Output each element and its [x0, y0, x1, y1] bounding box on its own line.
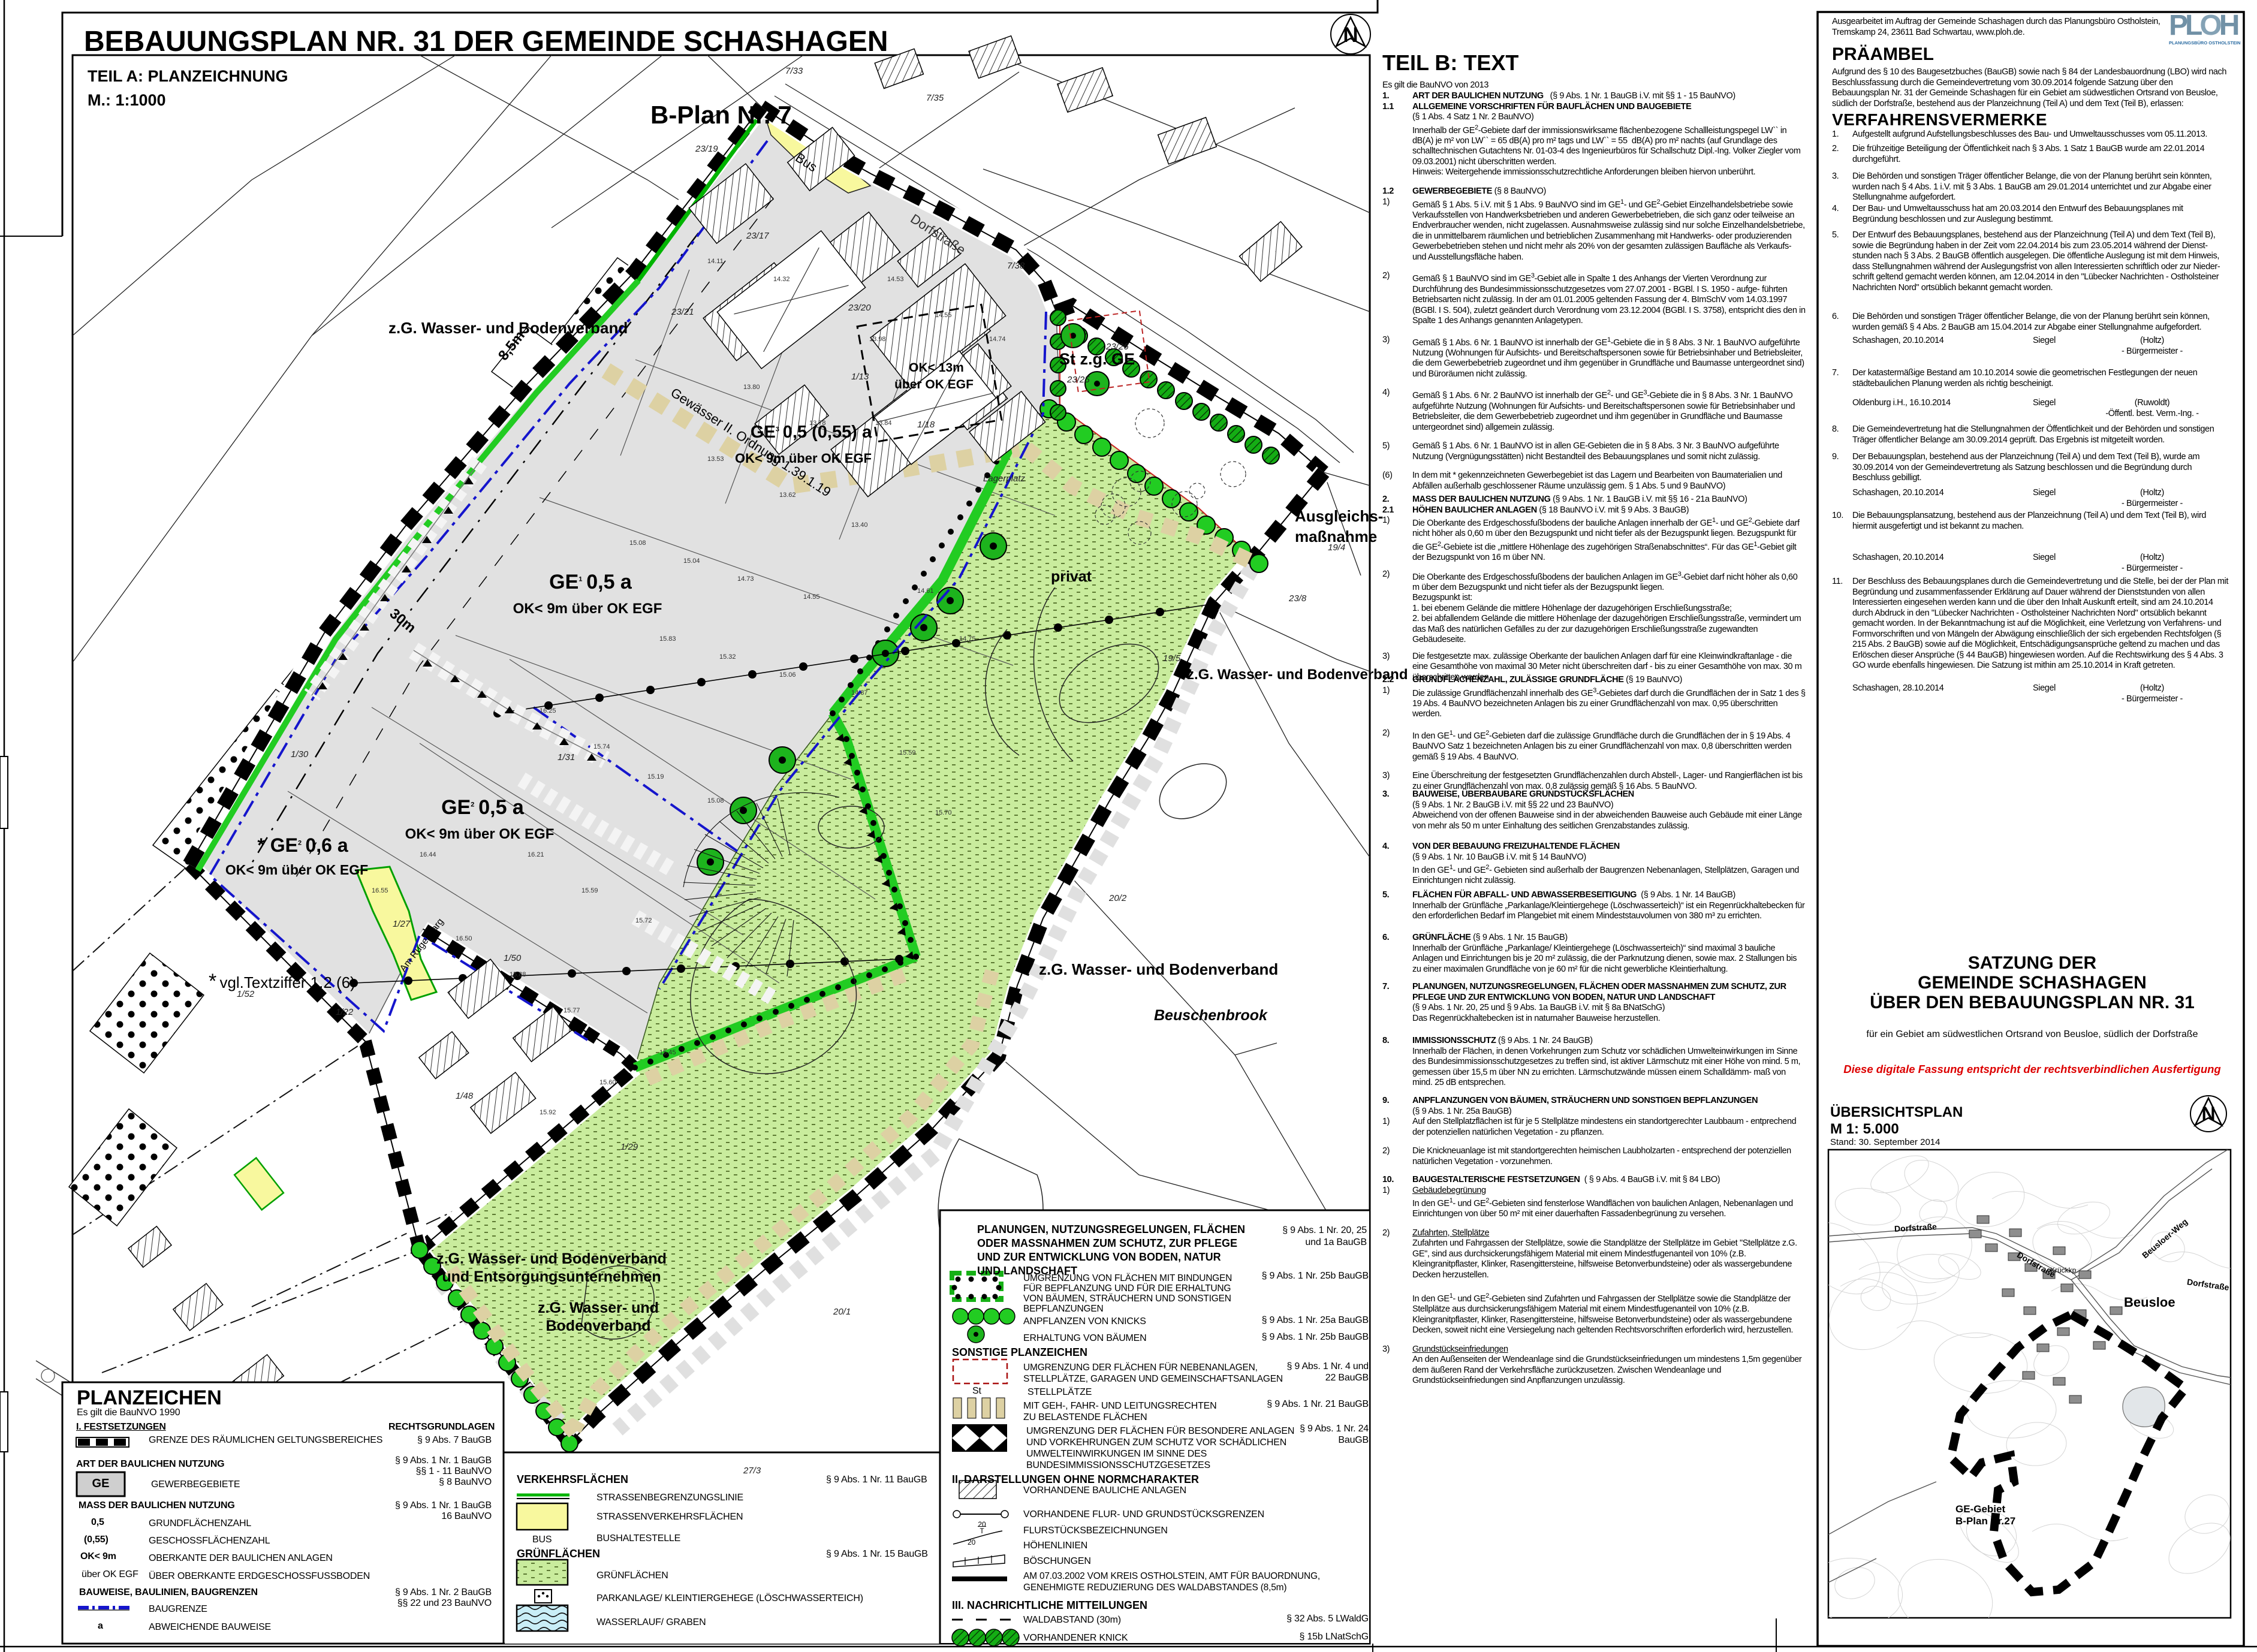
svg-text:N: N: [2201, 1103, 2215, 1125]
svg-text:N: N: [1343, 23, 1358, 47]
